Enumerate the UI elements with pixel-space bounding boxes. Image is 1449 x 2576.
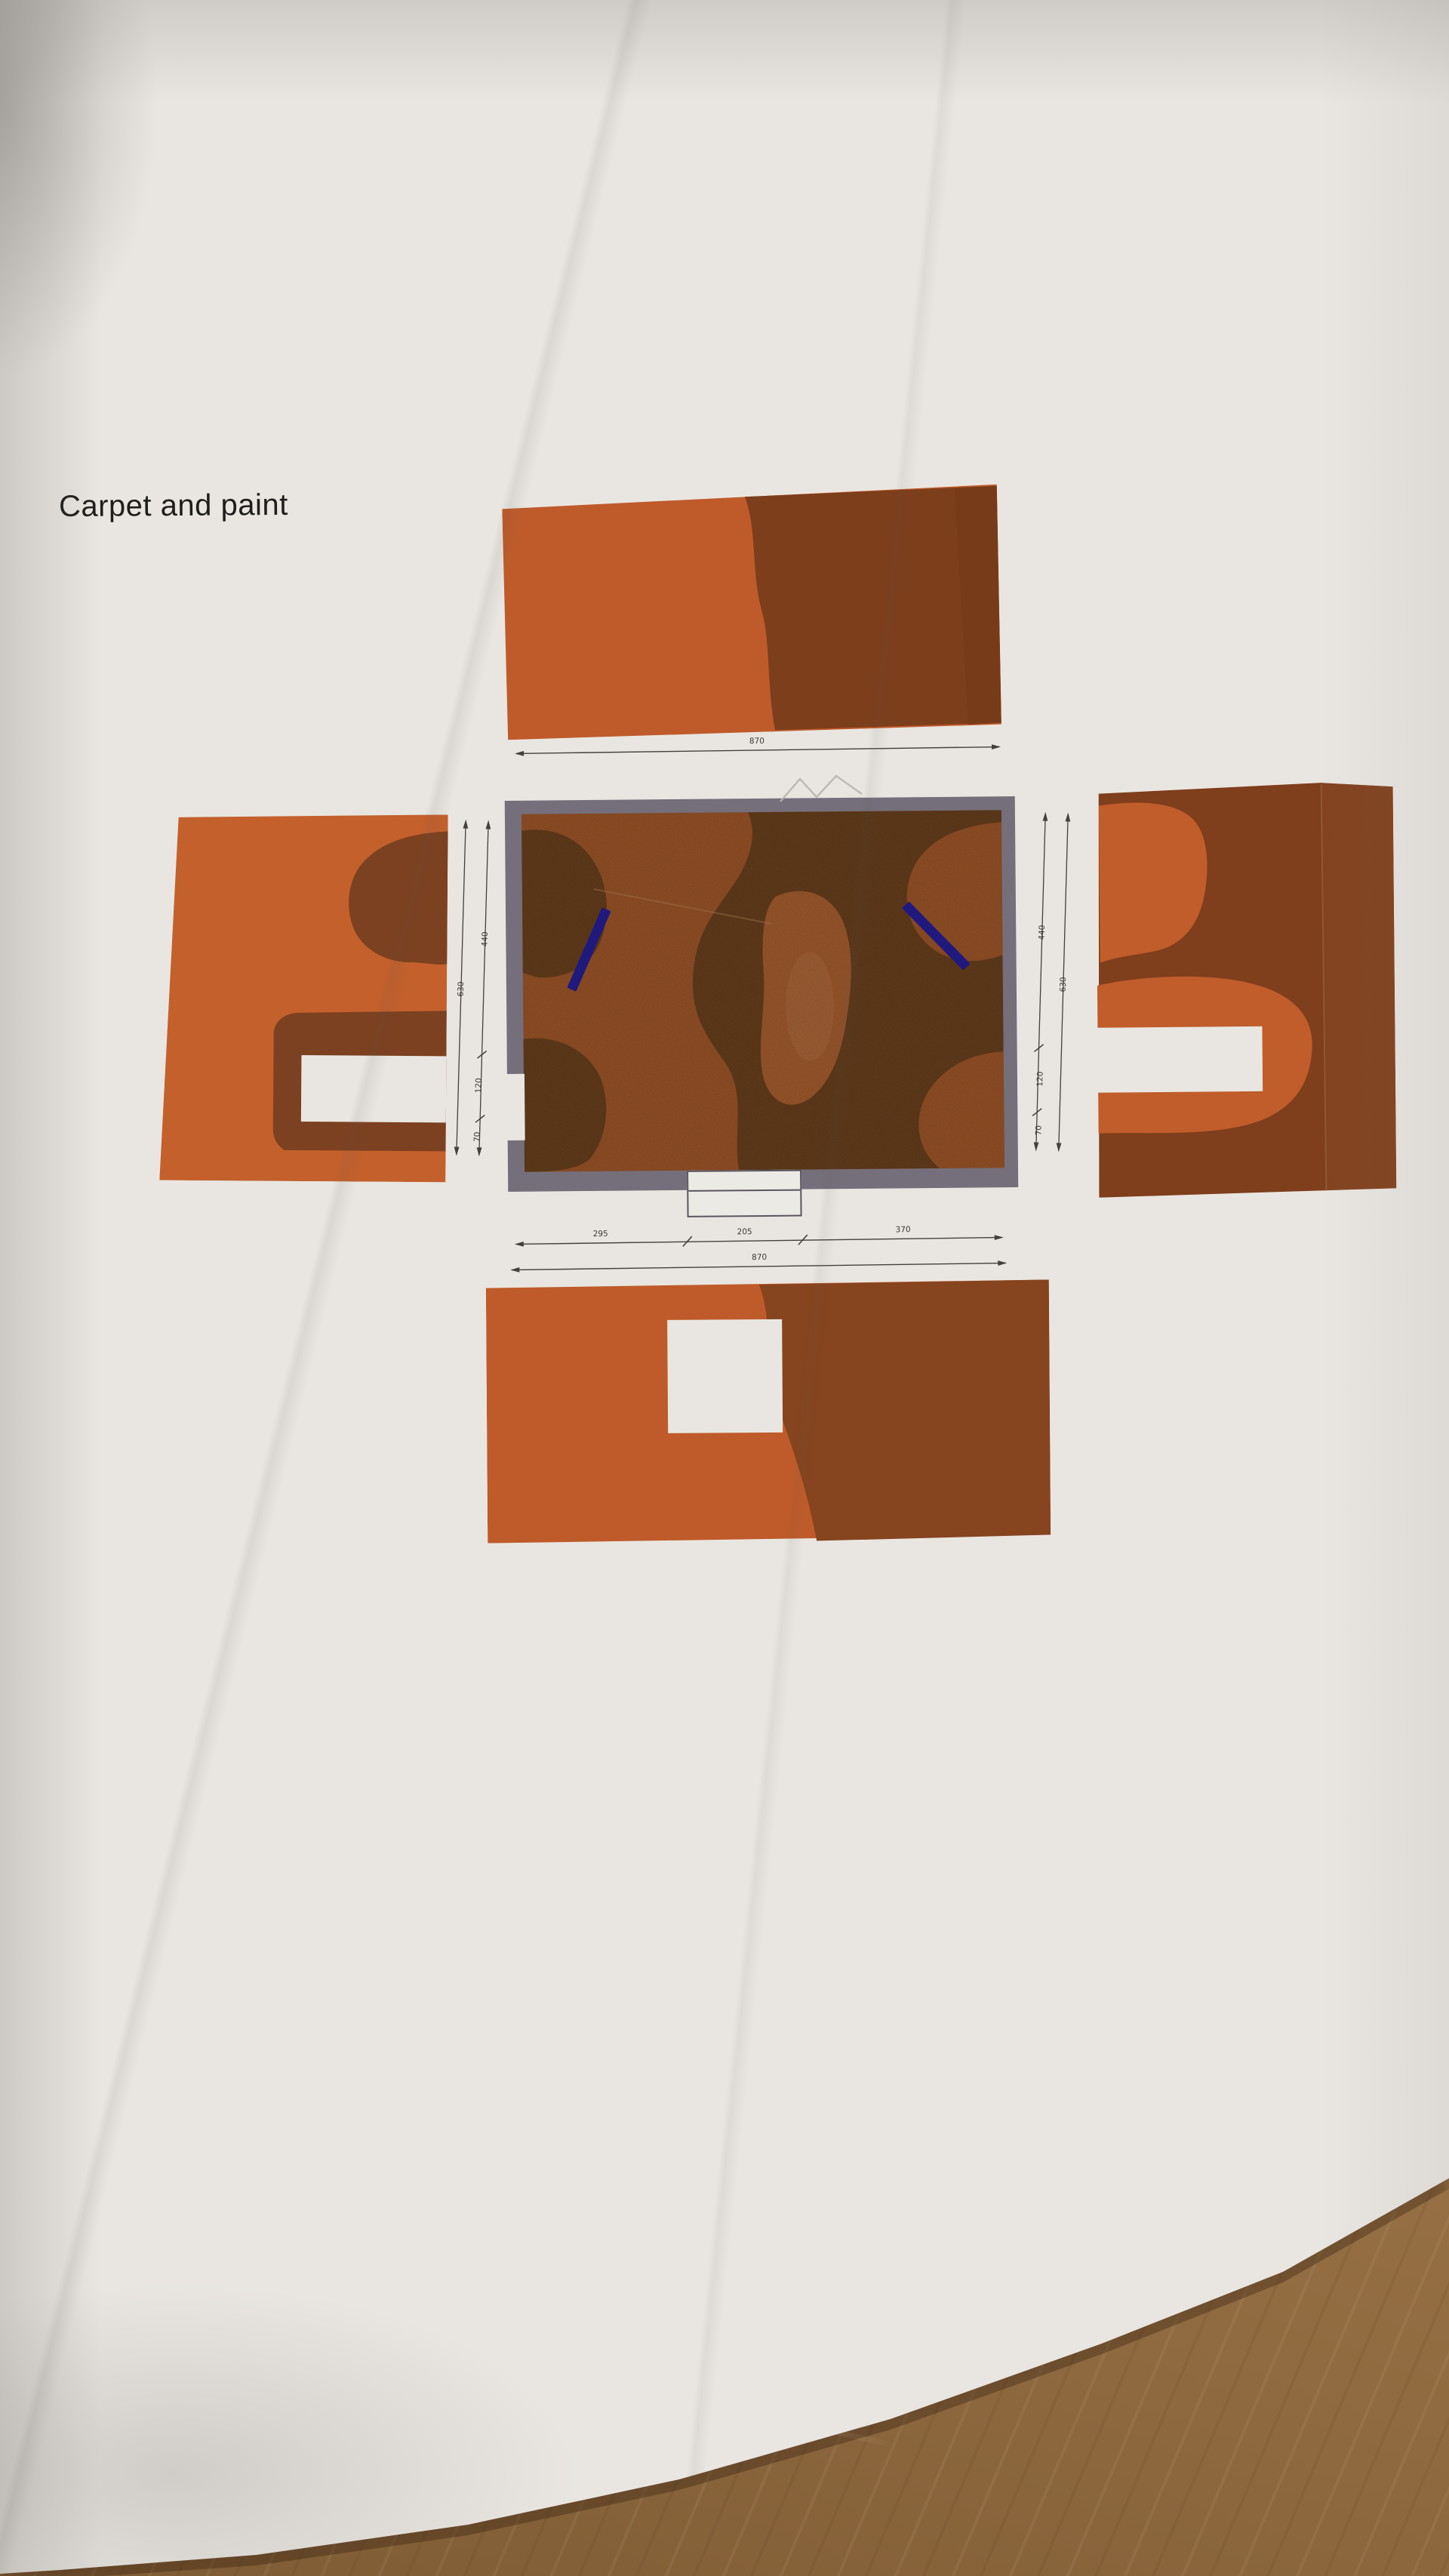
dimension-label-bottom-total: 870 xyxy=(729,1252,789,1262)
door-opening-left-plan xyxy=(506,1074,525,1140)
dimension-label-left-2: 120 xyxy=(474,1072,484,1099)
photo-of-document: Carpet and paint xyxy=(0,0,1449,2576)
wall-elevation-top-art xyxy=(502,485,1001,740)
dimension-label-bottom-2: 205 xyxy=(715,1227,775,1237)
dimension-label-left-total: 630 xyxy=(456,975,466,1002)
dimension-label-left-1: 440 xyxy=(480,925,490,953)
floor-plan xyxy=(505,796,1018,1192)
wall-elevation-bottom-art xyxy=(486,1279,1051,1543)
door-opening-left-elevation xyxy=(301,1055,447,1122)
wall-elevation-top xyxy=(502,485,1001,740)
paper-sheet: Carpet and paint xyxy=(0,0,1449,2576)
dimension-label-right-2: 120 xyxy=(1035,1065,1045,1092)
door-opening-bottom-plan xyxy=(687,1170,802,1217)
wall-elevation-right-art xyxy=(1094,780,1397,1197)
wall-elevation-bottom xyxy=(486,1279,1051,1543)
wall-elevation-right xyxy=(1094,780,1397,1197)
dimension-right: 440 630 120 70 xyxy=(1025,807,1078,1156)
door-threshold-line xyxy=(688,1190,800,1192)
dimension-bottom: 295 205 370 870 xyxy=(506,1217,1011,1282)
dimension-label-left-3: 70 xyxy=(472,1123,482,1150)
window-cutout xyxy=(667,1319,783,1433)
dimension-label-right-3: 70 xyxy=(1034,1116,1044,1143)
dimension-label-bottom-3: 370 xyxy=(873,1225,934,1235)
pencil-squiggle xyxy=(777,771,868,806)
dimension-label-right-1: 440 xyxy=(1037,919,1047,946)
carpet-plan xyxy=(521,810,1004,1172)
dimension-label-bottom-1: 295 xyxy=(571,1229,631,1239)
wall-elevation-left xyxy=(159,813,448,1183)
wall-elevation-left-art xyxy=(159,813,448,1183)
door-opening-right-elevation xyxy=(1094,1026,1263,1093)
page-title: Carpet and paint xyxy=(59,488,288,524)
dimension-left: 440 630 120 70 xyxy=(447,814,500,1161)
dimension-label-right-total: 630 xyxy=(1058,971,1068,998)
